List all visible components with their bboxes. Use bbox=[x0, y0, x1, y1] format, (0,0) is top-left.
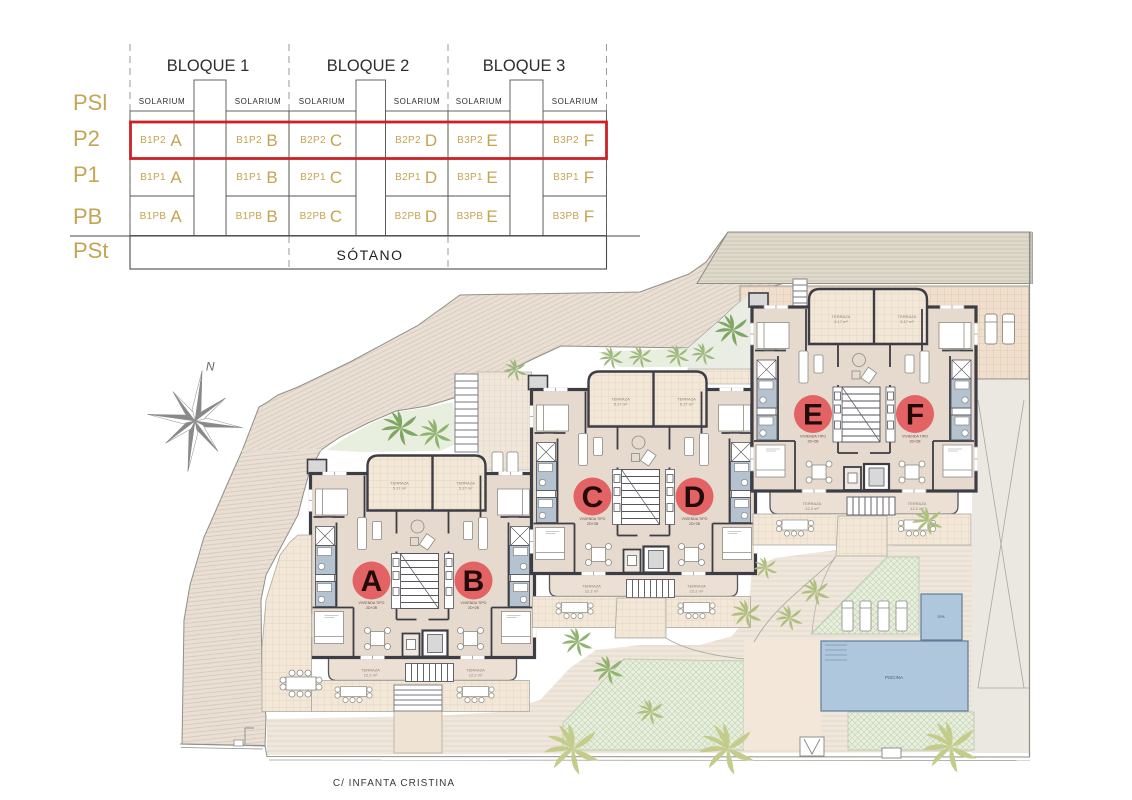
svg-text:SOLARIUM: SOLARIUM bbox=[139, 97, 186, 106]
svg-text:VIVIENDA TIPO: VIVIENDA TIPO bbox=[461, 601, 487, 605]
svg-text:B2P1: B2P1 bbox=[395, 172, 421, 183]
svg-text:P2: P2 bbox=[73, 126, 100, 151]
svg-text:A: A bbox=[170, 207, 182, 226]
svg-text:2D+2B: 2D+2B bbox=[468, 606, 480, 610]
svg-text:C: C bbox=[330, 168, 342, 187]
svg-text:E: E bbox=[486, 131, 497, 150]
svg-text:B1P2: B1P2 bbox=[140, 135, 166, 146]
svg-text:A: A bbox=[170, 168, 182, 187]
svg-text:B: B bbox=[266, 207, 277, 226]
svg-text:B3P2: B3P2 bbox=[553, 135, 579, 146]
svg-text:SOLARIUM: SOLARIUM bbox=[394, 97, 441, 106]
svg-text:C: C bbox=[330, 131, 342, 150]
svg-text:C/ INFANTA CRISTINA: C/ INFANTA CRISTINA bbox=[333, 778, 455, 789]
svg-text:B2PB: B2PB bbox=[300, 211, 327, 222]
svg-text:F: F bbox=[584, 168, 594, 187]
svg-text:2D+2B: 2D+2B bbox=[807, 440, 819, 444]
svg-text:B1PB: B1PB bbox=[236, 211, 263, 222]
svg-text:A: A bbox=[361, 565, 383, 598]
svg-text:A: A bbox=[170, 131, 182, 150]
svg-text:B: B bbox=[266, 131, 277, 150]
svg-text:PISCINA: PISCINA bbox=[885, 675, 903, 680]
svg-text:SOLARIUM: SOLARIUM bbox=[299, 97, 346, 106]
svg-text:F: F bbox=[584, 131, 594, 150]
svg-text:B1P1: B1P1 bbox=[140, 172, 166, 183]
svg-text:SOLARIUM: SOLARIUM bbox=[552, 97, 599, 106]
svg-text:BLOQUE 2: BLOQUE 2 bbox=[327, 57, 410, 75]
svg-text:C: C bbox=[582, 481, 604, 514]
svg-text:VIVIENDA TIPO: VIVIENDA TIPO bbox=[359, 601, 385, 605]
svg-text:B1P1: B1P1 bbox=[236, 172, 262, 183]
svg-text:E: E bbox=[486, 207, 497, 226]
svg-text:VIVIENDA TIPO: VIVIENDA TIPO bbox=[902, 435, 928, 439]
svg-text:B2PB: B2PB bbox=[395, 211, 422, 222]
svg-text:2D+2B: 2D+2B bbox=[366, 606, 378, 610]
svg-text:PSt: PSt bbox=[73, 238, 108, 263]
svg-text:SPA: SPA bbox=[937, 615, 945, 619]
svg-text:2D+2B: 2D+2B bbox=[587, 522, 599, 526]
svg-text:B2P2: B2P2 bbox=[300, 135, 326, 146]
svg-text:VIVIENDA TIPO: VIVIENDA TIPO bbox=[682, 517, 708, 521]
svg-text:E: E bbox=[486, 168, 497, 187]
svg-text:B1PB: B1PB bbox=[140, 211, 167, 222]
svg-text:B2P2: B2P2 bbox=[395, 135, 421, 146]
svg-text:C: C bbox=[330, 207, 342, 226]
svg-text:SOLARIUM: SOLARIUM bbox=[235, 97, 282, 106]
svg-text:D: D bbox=[425, 168, 437, 187]
svg-text:BLOQUE 3: BLOQUE 3 bbox=[483, 57, 566, 75]
svg-text:D: D bbox=[684, 481, 706, 514]
svg-text:VIVIENDA TIPO: VIVIENDA TIPO bbox=[800, 435, 826, 439]
svg-text:B3P1: B3P1 bbox=[457, 172, 483, 183]
svg-text:B1P2: B1P2 bbox=[236, 135, 262, 146]
svg-text:SÓTANO: SÓTANO bbox=[336, 247, 403, 263]
svg-text:D: D bbox=[425, 131, 437, 150]
svg-text:2D+2B: 2D+2B bbox=[909, 440, 921, 444]
svg-text:2D+2B: 2D+2B bbox=[689, 522, 701, 526]
svg-text:VIVIENDA TIPO: VIVIENDA TIPO bbox=[580, 517, 606, 521]
svg-text:B2P1: B2P1 bbox=[300, 172, 326, 183]
svg-text:F: F bbox=[584, 207, 594, 226]
svg-text:N: N bbox=[206, 360, 215, 374]
svg-text:B3P2: B3P2 bbox=[457, 135, 483, 146]
svg-text:PB: PB bbox=[73, 204, 102, 229]
svg-text:P1: P1 bbox=[73, 162, 100, 187]
svg-text:B: B bbox=[463, 565, 485, 598]
svg-text:F: F bbox=[906, 399, 924, 432]
svg-text:E: E bbox=[803, 399, 823, 432]
svg-text:PSl: PSl bbox=[73, 90, 107, 115]
svg-text:BLOQUE 1: BLOQUE 1 bbox=[167, 57, 250, 75]
svg-text:B: B bbox=[266, 168, 277, 187]
svg-text:SOLARIUM: SOLARIUM bbox=[456, 97, 503, 106]
svg-text:B3PB: B3PB bbox=[553, 211, 580, 222]
svg-text:B3P1: B3P1 bbox=[553, 172, 579, 183]
svg-text:D: D bbox=[425, 207, 437, 226]
svg-text:B3PB: B3PB bbox=[457, 211, 484, 222]
